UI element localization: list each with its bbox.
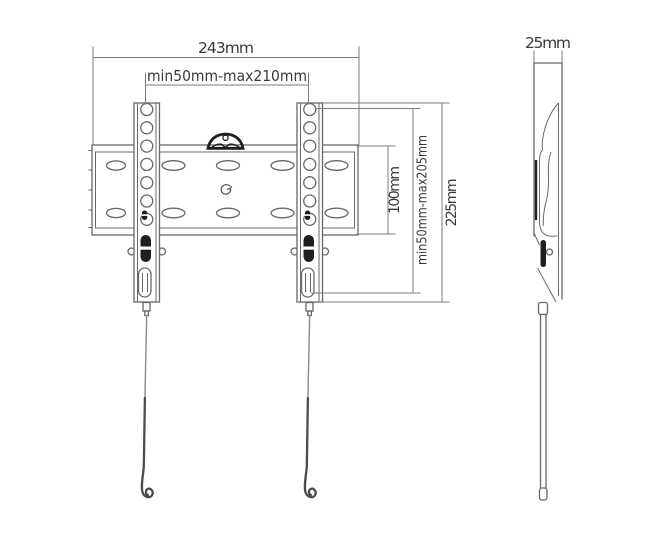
rail-hole bbox=[141, 195, 153, 207]
lock-icon-gap bbox=[141, 214, 148, 216]
side-view: 25mm bbox=[525, 34, 571, 500]
mounting-slot bbox=[271, 208, 294, 218]
drawing-canvas: 243mm min50mm-max210mm 100mm min50mm-max… bbox=[0, 0, 664, 540]
mounting-slot bbox=[162, 208, 185, 218]
safety-string bbox=[142, 316, 153, 498]
pull-tab bbox=[208, 134, 243, 148]
rod-body bbox=[541, 315, 547, 489]
dim-vertical-range: min50mm-max205mm bbox=[311, 109, 431, 294]
dim-label-overall-width: 243mm bbox=[198, 39, 254, 57]
dim-label-depth: 25mm bbox=[525, 34, 571, 52]
side-string-rod bbox=[539, 303, 548, 501]
extension-ticks bbox=[534, 51, 562, 63]
mount-diagram: 243mm min50mm-max210mm 100mm min50mm-max… bbox=[0, 0, 664, 540]
profile-bottom-taper bbox=[538, 268, 557, 302]
mounting-slot bbox=[107, 208, 126, 217]
rail-hole bbox=[141, 140, 153, 152]
pull-tab-hole bbox=[223, 135, 228, 140]
dim-label-plate-height: 100mm bbox=[387, 166, 403, 214]
right-rail bbox=[291, 103, 329, 497]
mounting-slot bbox=[162, 161, 185, 171]
extension-ticks bbox=[311, 109, 420, 294]
lock-icon bbox=[141, 211, 148, 221]
dim-label-horizontal-range: min50mm-max210mm bbox=[147, 67, 307, 85]
string-connector-top bbox=[143, 303, 150, 312]
screw-hole-side bbox=[547, 249, 553, 255]
front-view: 243mm min50mm-max210mm 100mm min50mm-max… bbox=[89, 39, 461, 497]
dim-horizontal-range: min50mm-max210mm bbox=[146, 67, 309, 104]
lock-capsule-side bbox=[541, 240, 547, 267]
left-rail bbox=[128, 103, 166, 497]
profile-inner-curve bbox=[543, 152, 551, 226]
string-upper bbox=[145, 316, 147, 399]
string-connector bbox=[143, 303, 150, 316]
mounting-slot bbox=[217, 161, 240, 171]
brand-logo-icon bbox=[221, 185, 231, 194]
rail-hole bbox=[141, 158, 153, 170]
profile-plate-curve bbox=[540, 103, 559, 236]
dim-label-vertical-range: min50mm-max205mm bbox=[416, 135, 431, 265]
string-lower-with-loop bbox=[142, 398, 153, 497]
side-bracket-profile bbox=[534, 63, 562, 302]
mounting-slot bbox=[217, 208, 240, 218]
profile-lower-joint bbox=[534, 233, 540, 245]
dim-depth: 25mm bbox=[525, 34, 571, 63]
rod-bottom-cap bbox=[540, 488, 548, 500]
release-slot bbox=[139, 268, 152, 297]
lock-pin bbox=[140, 235, 152, 262]
release-slot-outline bbox=[139, 268, 152, 297]
mounting-slot bbox=[271, 161, 294, 171]
mounting-slot bbox=[325, 208, 348, 218]
rod-top-cap bbox=[539, 303, 548, 315]
mounting-slot bbox=[107, 161, 126, 170]
rail-hole bbox=[141, 104, 153, 116]
rail-hole bbox=[141, 177, 153, 189]
rail-hole bbox=[141, 122, 153, 134]
dim-plate-height: 100mm bbox=[357, 146, 403, 234]
dim-label-overall-height: 225mm bbox=[444, 179, 460, 227]
lock-pin-band bbox=[140, 247, 152, 250]
mounting-slot bbox=[325, 161, 348, 171]
